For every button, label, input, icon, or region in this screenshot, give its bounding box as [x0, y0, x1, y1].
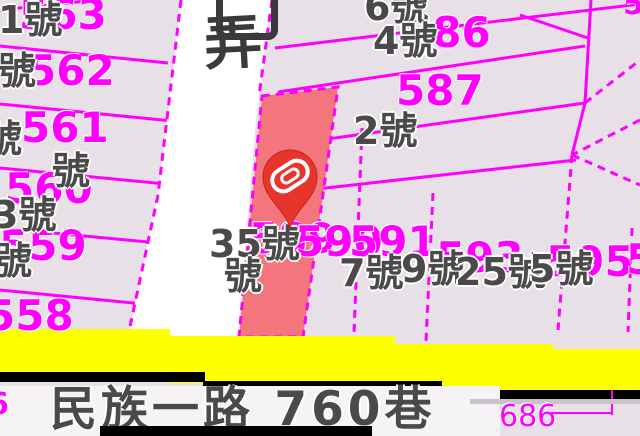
map-labels-layer: 弄 民族一路 760巷 5635625615605595585865875895… — [0, 0, 640, 436]
parcel-number-label: 587 — [396, 70, 484, 112]
house-number-label: 4號 — [373, 22, 437, 60]
house-number-label: 1號 — [0, 1, 62, 39]
lower-road-casing-bar — [100, 426, 372, 436]
location-pin-marker[interactable] — [260, 146, 320, 232]
map-canvas[interactable]: 弄 民族一路 760巷 5635625615605595585865875895… — [0, 0, 640, 436]
parcel-number-label: 558 — [0, 295, 74, 337]
parcel-number-label: 5 — [626, 239, 640, 281]
parcel-number-label: 562 — [27, 50, 115, 92]
house-number-label: 號 — [0, 242, 32, 280]
cutoff-lane-character-glyph — [216, 0, 278, 40]
parcel-number-label: 5 — [623, 0, 640, 20]
house-number-label: 3號 — [0, 196, 56, 234]
parcel-number-label: 686 — [499, 402, 556, 432]
house-number-label: 號 — [0, 52, 36, 90]
parcel-number-label: 561 — [21, 107, 109, 149]
house-number-label: 7號 — [339, 254, 403, 292]
house-number-label: 號 — [0, 120, 22, 158]
house-number-label: 5號 — [529, 250, 593, 288]
house-number-label: 2號 — [353, 112, 417, 150]
house-number-label: 號 — [224, 257, 262, 295]
parcel-number-label: 6 — [0, 390, 9, 420]
house-number-label: 號 — [52, 152, 90, 190]
